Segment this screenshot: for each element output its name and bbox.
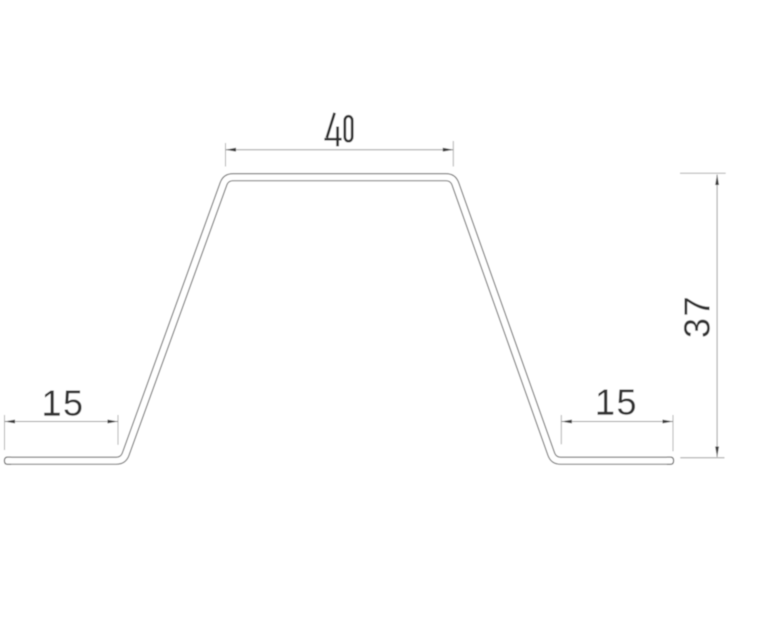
svg-text:15: 15: [595, 382, 638, 423]
svg-text:15: 15: [41, 383, 84, 424]
svg-text:37: 37: [677, 295, 718, 338]
